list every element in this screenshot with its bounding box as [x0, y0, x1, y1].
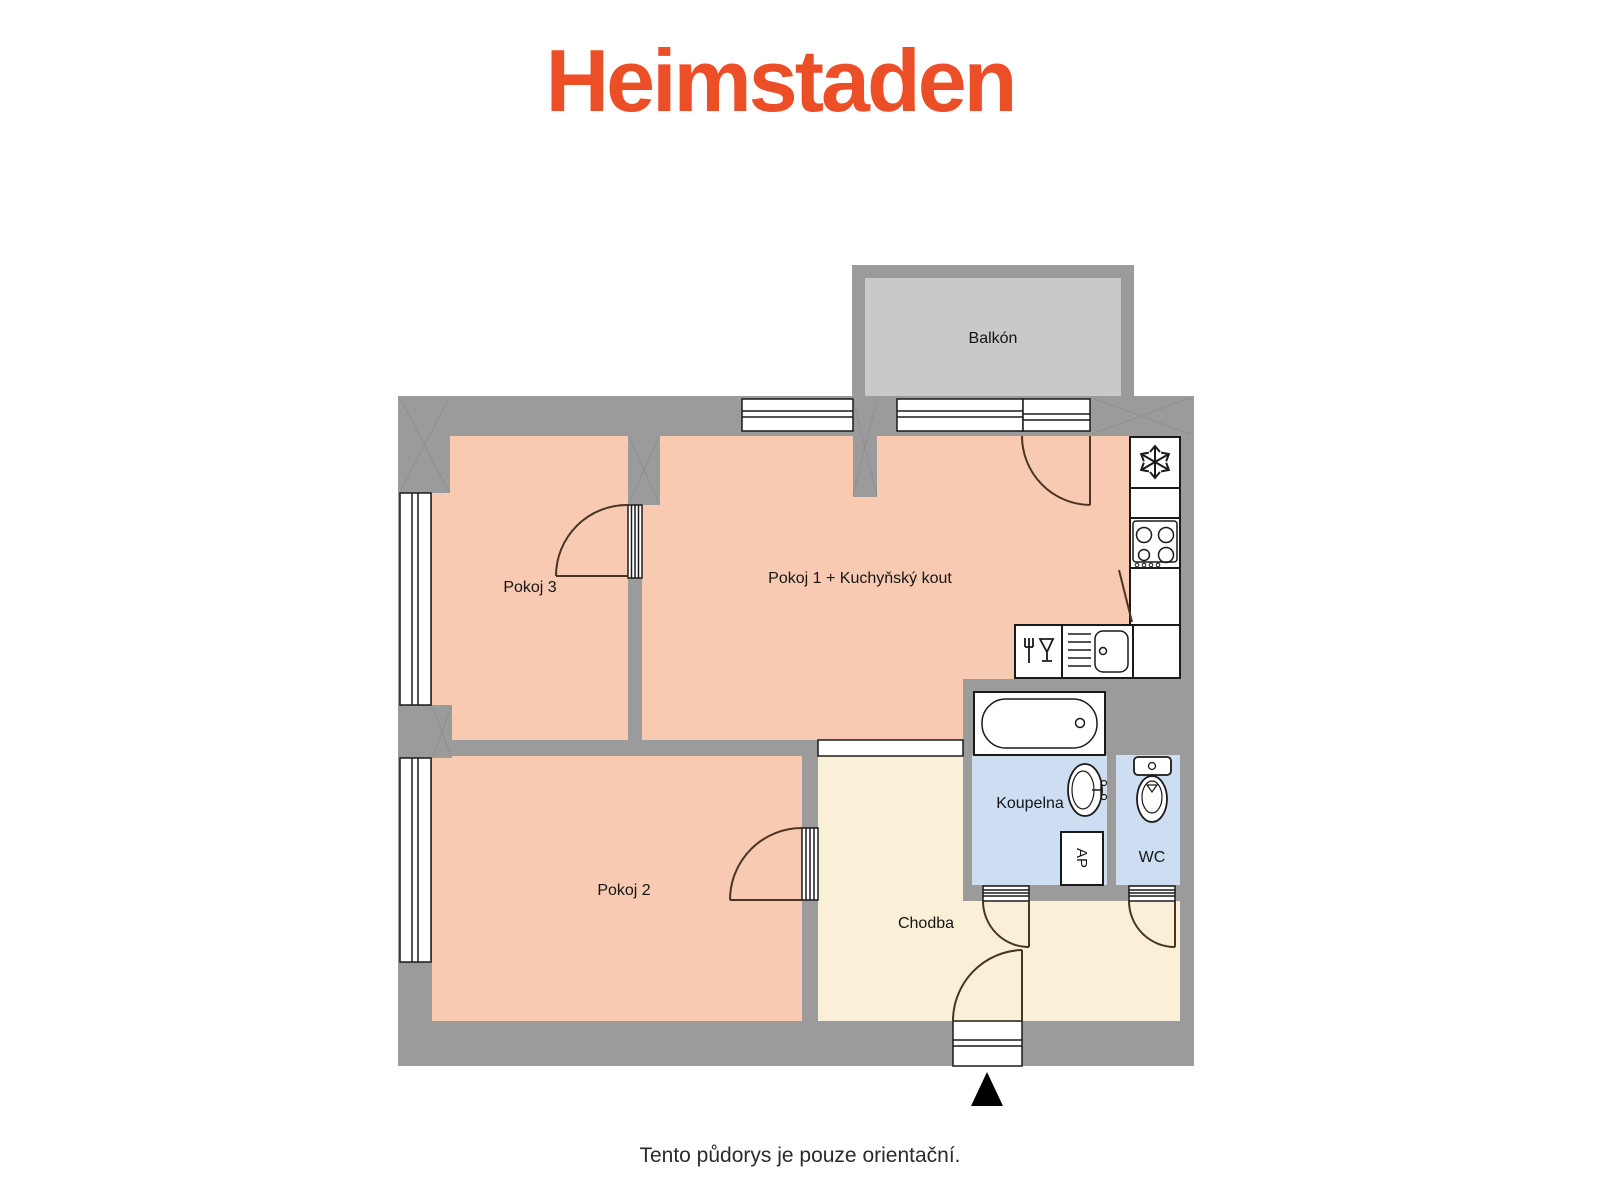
floor-plan: Balkón Pokoj 3 Pokoj 1 + Kuchyňský kout …: [0, 0, 1600, 1200]
balcony-wall-right: [1121, 265, 1134, 400]
label-pokoj2: Pokoj 2: [597, 882, 650, 899]
label-pokoj3: Pokoj 3: [503, 579, 556, 596]
kitchen-counter: [1130, 488, 1180, 518]
label-pokoj1: Pokoj 1 + Kuchyňský kout: [768, 570, 952, 587]
bathtub-icon: [974, 692, 1105, 755]
window-pokoj1-right: [897, 399, 1023, 431]
label-balkon: Balkón: [969, 330, 1018, 347]
label-wc: WC: [1139, 849, 1166, 866]
balcony-wall-left: [852, 265, 865, 400]
window-pokoj3: [400, 493, 431, 705]
window-pokoj2: [400, 758, 431, 962]
label-ap: AP: [1073, 848, 1090, 868]
label-koupelna: Koupelna: [996, 795, 1064, 812]
wall-right: [1180, 396, 1194, 1066]
door-jamb-pokoj3: [628, 505, 642, 578]
kitchen-counter: [1130, 568, 1180, 625]
label-chodba: Chodba: [898, 915, 954, 932]
entrance-door-jamb: [953, 1021, 1022, 1066]
kitchen-counter-corner: [1133, 625, 1180, 678]
disclaimer-text: Tento půdorys je pouze orientační.: [0, 1144, 1600, 1168]
door-jamb-pokoj2: [802, 828, 818, 900]
balcony-door-panel: [1023, 399, 1090, 431]
fridge-icon: [1130, 437, 1180, 488]
door-jamb-koupelna: [983, 886, 1029, 901]
door-jamb-wc: [1129, 886, 1175, 901]
balcony-wall-top: [852, 265, 1134, 278]
kitchen-sink-icon: [1062, 625, 1133, 678]
dishwasher-icon: [1015, 625, 1062, 678]
wall-bottom: [398, 1021, 1194, 1066]
window-pokoj1-left: [742, 399, 853, 431]
entrance-arrow: [971, 1072, 1003, 1106]
stove-icon: [1130, 518, 1180, 568]
wall-opening: [818, 740, 963, 756]
